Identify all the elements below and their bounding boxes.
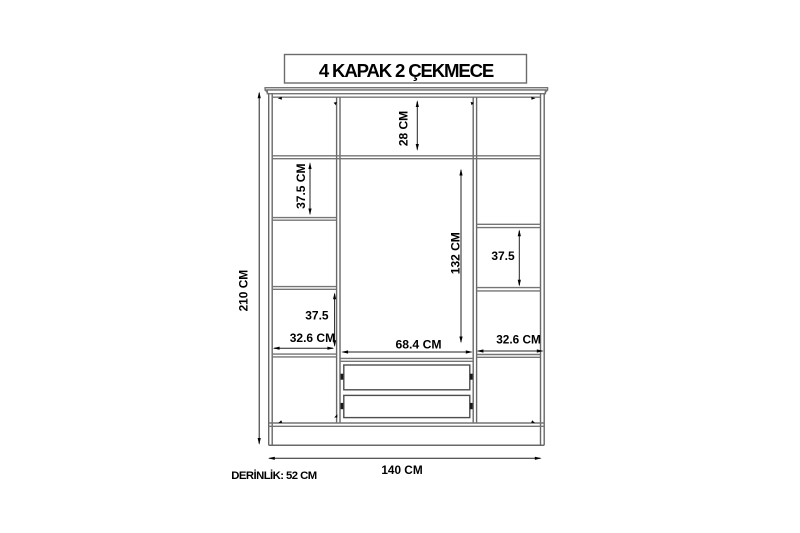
svg-text:140 CM: 140 CM [381,463,422,477]
svg-text:37.5 CM: 37.5 CM [294,164,308,209]
svg-text:32.6 CM: 32.6 CM [290,331,335,345]
svg-text:4 KAPAK 2 ÇEKMECE: 4 KAPAK 2 ÇEKMECE [319,60,494,81]
svg-text:37.5: 37.5 [305,309,329,323]
svg-text:37.5: 37.5 [491,249,515,263]
svg-text:132 CM: 132 CM [448,232,462,274]
svg-text:DERİNLİK: 52 CM: DERİNLİK: 52 CM [231,469,316,482]
svg-text:210 CM: 210 CM [236,270,250,312]
svg-text:28 CM: 28 CM [397,111,411,146]
svg-text:32.6 CM: 32.6 CM [496,332,541,346]
svg-text:68.4 CM: 68.4 CM [395,338,441,352]
